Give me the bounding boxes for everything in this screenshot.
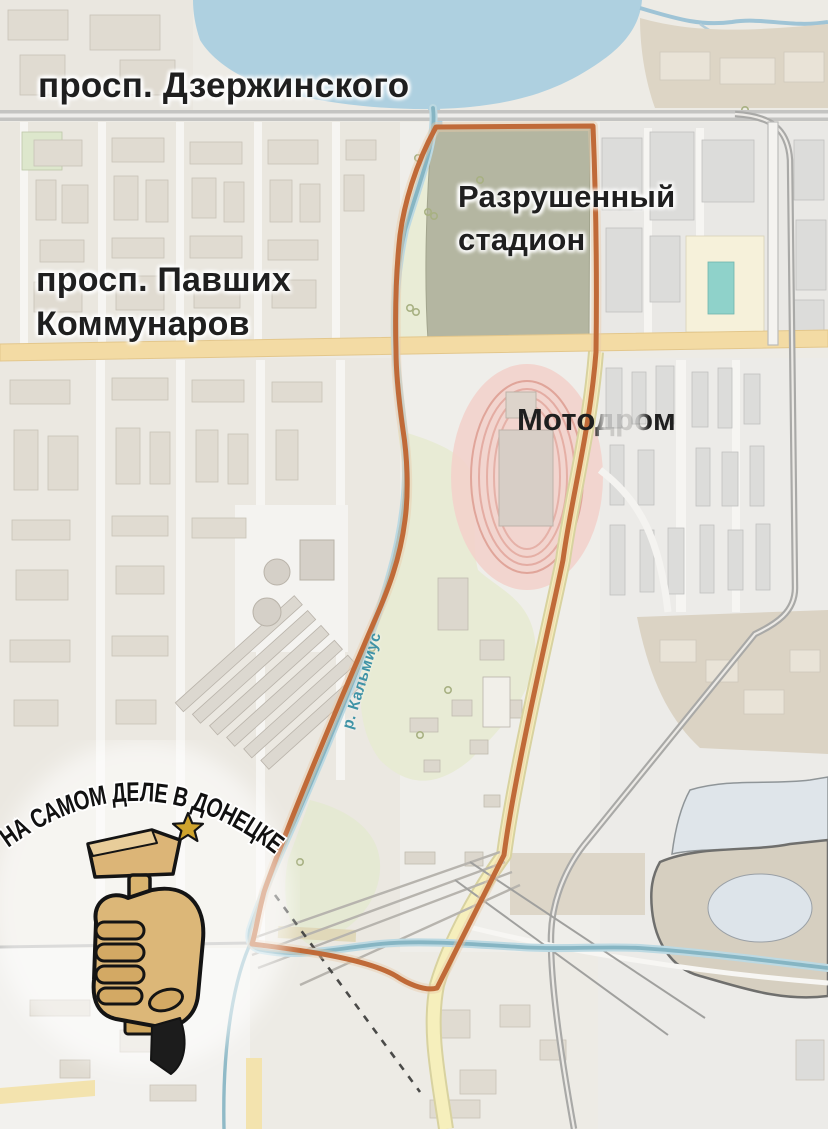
destroyed-stadium-label: Разрушенный стадион (458, 176, 675, 262)
stadium-label-line2: стадион (458, 219, 675, 262)
street-label-line1: просп. Павших (36, 258, 291, 302)
street-label-dzerzhinskogo: просп. Дзержинского (38, 64, 409, 108)
road-dzerzhinskogo (0, 110, 828, 121)
map-screenshot: просп. Дзержинского просп. Павших Коммун… (0, 0, 828, 1129)
street-label-line2: Коммунаров (36, 302, 291, 346)
stadium-label-line1: Разрушенный (458, 176, 675, 219)
street-label-pavshikh-kommunarov: просп. Павших Коммунаров (36, 258, 291, 346)
motodrome-label: Мотодром (517, 400, 676, 439)
watermark-logo: НА САМОМ ДЕЛЕ В ДОНЕЦКЕ (0, 740, 300, 1100)
